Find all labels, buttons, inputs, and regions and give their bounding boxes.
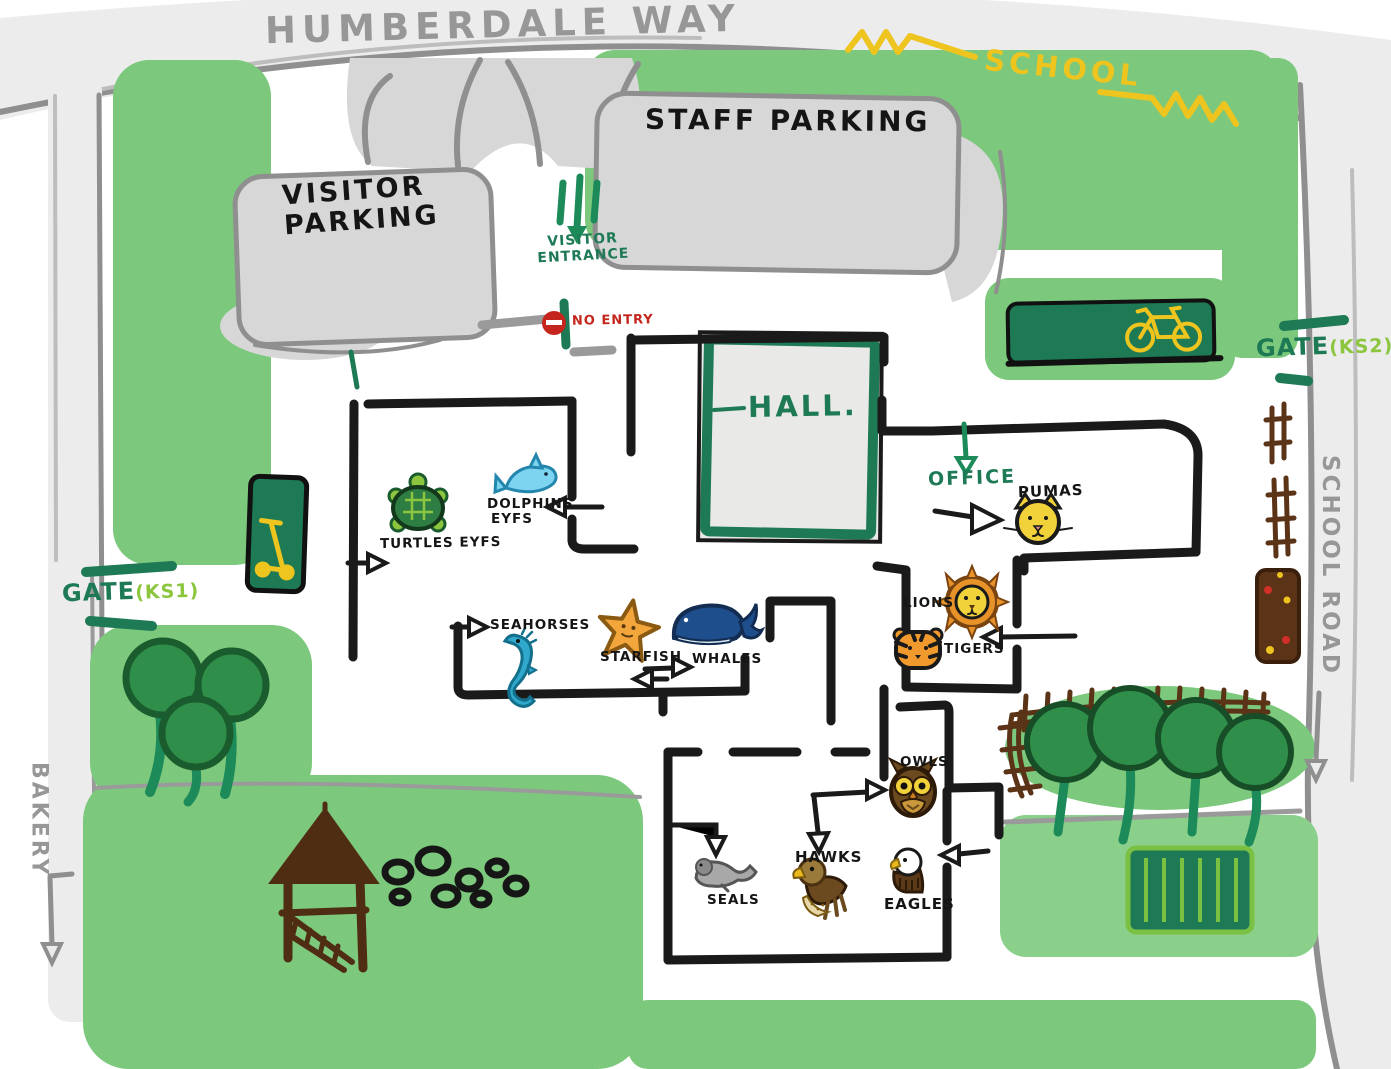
roadside-fence: [1266, 404, 1294, 556]
map-drawing: [0, 0, 1391, 1069]
gate-tick: [351, 352, 357, 387]
turtle-icon: [389, 474, 447, 531]
gate-ks1-label: GATE(KS1): [62, 576, 200, 608]
gate-ks2-label: GATE(KS2): [1256, 331, 1391, 363]
scooter-shelter: [247, 476, 307, 592]
classroom-label-lions: LIONS: [903, 596, 954, 611]
hall-label: HALL.: [748, 389, 858, 423]
dolphin-icon: [495, 455, 556, 492]
classroom-label-whales: WHALES: [692, 652, 762, 667]
classroom-label-owls: OWLS: [900, 755, 949, 770]
road-label-bakery: BAKERY: [26, 762, 51, 878]
classroom-label-seals: SEALS: [707, 893, 760, 908]
office-label: OFFICE: [928, 466, 1017, 490]
hall-building: [698, 332, 882, 542]
eagle-icon: [891, 849, 923, 892]
classroom-label-hawks: HAWKS: [795, 849, 862, 866]
hawk-icon: [793, 859, 846, 918]
visitor-entrance-label: VISITOR ENTRANCE: [527, 230, 638, 267]
classroom-label-dolphins: DOLPHINS EYFS: [487, 497, 574, 527]
classroom-label-pumas: PUMAS: [1018, 482, 1084, 501]
tiger-icon: [894, 629, 942, 668]
no-entry-label: NO ENTRY: [572, 313, 654, 329]
whale-icon: [674, 604, 762, 644]
bike-shelter: [1007, 300, 1220, 364]
flower-planter: [1257, 570, 1299, 662]
road-label-school-road: SCHOOL ROAD: [1316, 455, 1342, 676]
visitor-parking-label: VISITOR PARKING: [281, 171, 441, 242]
classroom-label-eagles: EAGLES: [884, 896, 955, 913]
classroom-label-seahorses: SEAHORSES: [490, 618, 590, 633]
seal-icon: [696, 859, 756, 891]
no-entry-icon: [542, 303, 566, 345]
bench: [1128, 848, 1252, 932]
classroom-label-starfish: STARFISH: [600, 650, 682, 665]
staff-parking-label: STAFF PARKING: [645, 104, 931, 138]
puma-icon: [1004, 494, 1072, 543]
school-map: HUMBERDALE WAY SCHOOL STAFF PARKING VISI…: [0, 0, 1391, 1069]
classroom-label-turtles: TURTLES EYFS: [380, 535, 502, 552]
classroom-label-tigers: TIGERS: [944, 642, 1005, 657]
